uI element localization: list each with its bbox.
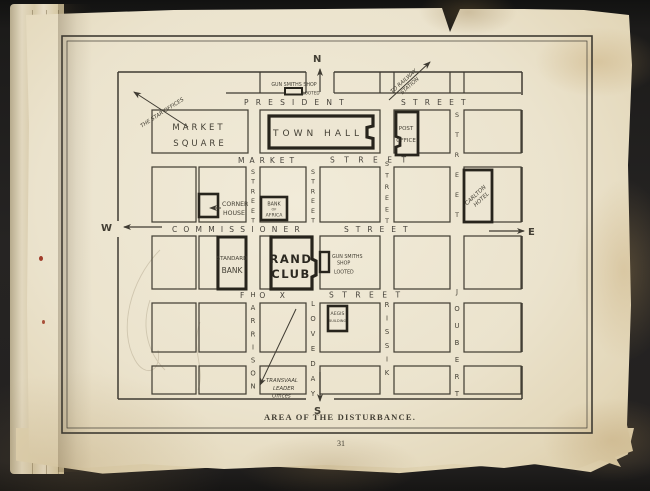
standard-bank-label-2: BANK [222,266,244,275]
city-blocks [152,110,521,394]
standard-bank-building [218,237,246,289]
city-block [199,303,246,352]
city-block [320,366,380,394]
street-label-commissioner: COMMISSIONER [172,225,306,234]
transvaal-leader-label-2: LEADER [273,386,295,392]
map-drawing: PRESIDENT STREET MARKET STREET COMMISSIO… [0,0,650,491]
street-label-rissik: RISSIK [385,301,390,377]
street-label-loveday: LOVEDAY [310,300,316,398]
city-block [152,366,196,394]
city-block [394,303,450,352]
railway-station-arrow [389,62,430,100]
gunsmith-north-label-1: GUN SMITHS SHOP [271,82,316,88]
compass-east-label: E [528,227,535,238]
transvaal-leader-label-1: TRANSVAAL [266,378,298,384]
city-block [152,236,196,289]
transvaal-leader-label-3: Offices [272,394,291,400]
street-label-fox: FOX [240,291,300,300]
gunsmith-north-label-2: LOOTED [302,91,319,96]
city-block [152,167,196,222]
rand-club-label-2: CLUB [271,267,310,281]
post-office-label-2: OFFICE [396,138,416,144]
market-square-label-2: SQUARE [173,139,226,149]
corner-house-label-1: CORNER [222,201,249,208]
town-hall-label: TOWN HALL [272,129,363,139]
outer-border [62,36,592,433]
gunsmith-south-label-3: LOOTED [334,270,354,276]
street-label-president: PRESIDENT [244,98,351,107]
street-label-harrison-suffix: STREET [250,169,256,225]
gunsmith-shop-south-building [320,252,329,272]
gunsmith-south-label-1: GUN SMITHS [332,254,363,260]
aegis-building-label-2: BUILDING [329,319,347,323]
gunsmith-south-label-2: SHOP [337,261,350,267]
post-office-building [396,112,418,155]
street-label-harrison: HARRISON [250,291,255,391]
bank-of-africa-label-2: OF [272,208,277,212]
page-number: 31 [337,439,345,448]
street-label-rissik-suffix: STREET [384,161,390,225]
corner-house-building [199,194,218,217]
city-block [464,303,521,352]
city-block [464,366,521,394]
gunsmith-shop-north-building [285,88,302,95]
street-label-joubert-suffix: STREET [454,112,460,219]
post-office-label-1: POST [399,126,414,132]
city-block [199,236,217,289]
aegis-building-label-1: AEGIS [331,311,345,317]
corner-house-label-2: HOUSE [223,210,245,217]
map-caption: AREA OF THE DISTURBANCE. [264,412,416,422]
bank-of-africa-label-3: AFRICA [266,213,284,219]
street-label-market-suffix: STREET [330,156,416,165]
street-label-commissioner-suffix: STREET [344,225,415,234]
transvaal-leader-arrow [260,309,296,385]
photo-background: PRESIDENT STREET MARKET STREET COMMISSIO… [0,0,650,491]
street-label-fox-suffix: STREET [329,291,409,300]
street-label-market: MARKET [238,156,299,165]
street-label-president-suffix: STREET [401,98,473,107]
standard-bank-label-1: STANDARD [217,256,248,262]
city-block [152,303,196,352]
city-block [260,303,306,352]
city-block [394,167,450,222]
pencil-scribbles [127,250,200,390]
market-square-label-1: MARKET [172,123,225,133]
city-block [320,167,380,222]
top-strip-lines [226,72,521,93]
city-block [464,110,521,153]
street-label-joubert: JOUBERT [454,288,460,398]
city-block [394,366,450,394]
rand-club-label-1: RAND [270,252,313,266]
city-block [199,366,246,394]
street-label-loveday-suffix: STREET [310,169,316,225]
compass-north-label: N [313,54,321,65]
compass-west-label: W [101,223,112,234]
city-block [394,236,450,289]
city-block [464,236,521,289]
